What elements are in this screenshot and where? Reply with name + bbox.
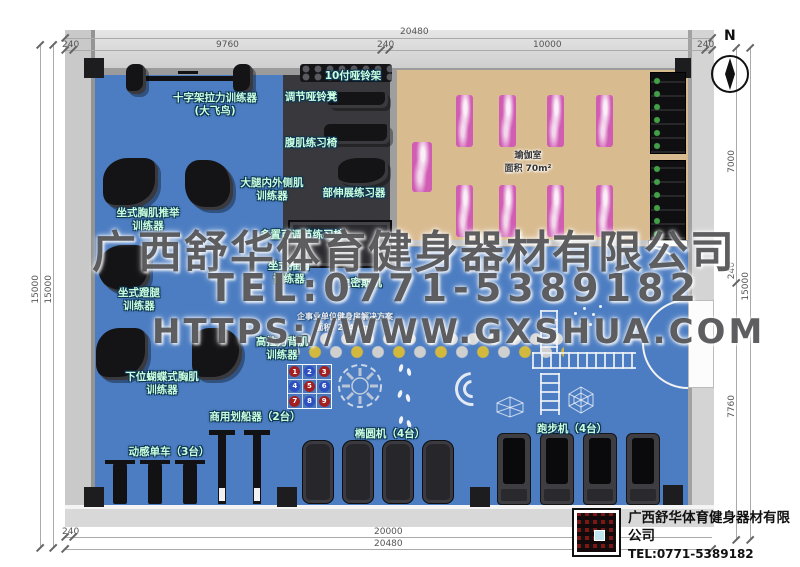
label-treadmills: 跑步机（4台） (524, 423, 620, 436)
yoga-mat-icon (456, 95, 473, 147)
dim-right-seg: 7760 (727, 395, 737, 418)
storage-shelf-icon (650, 72, 686, 154)
treadmill-icon (583, 433, 617, 505)
back-extension-icon (338, 158, 388, 186)
hopscotch-grid-icon: 1 2 3 4 5 6 7 8 9 (287, 364, 332, 409)
spin-bike-bar-icon (105, 460, 135, 464)
hop-cell: 1 (288, 365, 302, 379)
dim-bottom-seg: 20000 (374, 527, 403, 537)
gym-floor-plan: 瑜伽室 面积 70m² 1 2 3 4 5 6 7 8 (0, 0, 800, 567)
crossover-bar-icon (133, 76, 245, 81)
hop-cell: 5 (303, 380, 317, 394)
hop-cell: 9 (317, 394, 331, 408)
hop-cell: 8 (303, 394, 317, 408)
spin-bike-icon (113, 462, 127, 504)
spin-bike-bar-icon (175, 460, 205, 464)
yoga-mat-icon (499, 95, 516, 147)
spin-bike-bar-icon (140, 460, 170, 464)
dim-bottom-overall: 20480 (374, 539, 403, 549)
dim-top-seg: 9760 (216, 40, 239, 50)
dim-line-right-segments (736, 48, 737, 540)
footer-company: 广西舒华体育健身器材有限公司 (628, 509, 800, 545)
elliptical-icon (382, 440, 414, 504)
agility-ladder-icon (532, 352, 636, 369)
north-label: N (724, 28, 736, 44)
spin-bike-icon (148, 462, 162, 504)
footer-url: HTTPS://WWW.GXSHUA.COM (628, 563, 800, 567)
crossover-end-icon (233, 64, 253, 94)
dim-right-overall: 15000 (741, 272, 751, 301)
north-compass-icon (711, 55, 749, 93)
label-ellipticals: 椭圆机（4台） (340, 428, 440, 441)
elliptical-icon (422, 440, 454, 504)
column (470, 487, 490, 507)
rower-seat-icon (219, 488, 225, 501)
elliptical-icon (342, 440, 374, 504)
treadmill-icon (540, 433, 574, 505)
qr-code-icon (572, 508, 621, 557)
dim-left-outer: 15000 (31, 275, 41, 304)
label-leg-press: 坐式蹬腿 训练器 (96, 287, 182, 312)
chest-press-machine-icon (103, 158, 158, 208)
yoga-room-label: 瑜伽室 面积 70m² (478, 150, 578, 175)
column (277, 487, 297, 507)
label-adj-bench: 调节哑铃凳 (278, 91, 344, 104)
crossover-end-icon (126, 64, 146, 94)
label-back-extension: 部伸展练习器 (311, 187, 397, 200)
column (663, 485, 683, 505)
yoga-room-area: 面积 70m² (478, 163, 578, 176)
rower-handle-icon (209, 430, 235, 435)
watermark-tel: TEL:0771-5389182 (208, 266, 702, 310)
label-pec-fly: 下位蝴蝶式胸肌 训练器 (88, 371, 236, 396)
yoga-mat-icon (412, 142, 432, 192)
spin-bike-icon (183, 462, 197, 504)
wall-left (65, 30, 95, 526)
spider-web-icon (494, 396, 526, 418)
footer-tel: TEL:0771-5389182 (628, 545, 800, 563)
elliptical-icon (302, 440, 334, 504)
footer-info: 广西舒华体育健身器材有限公司 TEL:0771-5389182 HTTPS://… (628, 509, 800, 567)
yoga-mat-icon (596, 95, 613, 147)
hop-cell: 3 (317, 365, 331, 379)
spider-web-icon (566, 386, 596, 414)
dim-top-seg: 10000 (533, 40, 562, 50)
yoga-mat-icon (547, 95, 564, 147)
watermark-url: HTTPS://WWW.GXSHUA.COM (152, 312, 765, 352)
label-dumbbell-rack: 10付哑铃架 (310, 70, 396, 83)
agility-wheel-icon (336, 362, 384, 410)
label-crossover: 十字架拉力训练器 (大飞鸟) (150, 92, 280, 117)
agility-ladder-icon (540, 373, 560, 415)
hop-cell: 4 (288, 380, 302, 394)
dim-top-overall: 20480 (400, 27, 429, 37)
label-rowers: 商用划船器（2台） (198, 411, 312, 424)
treadmill-icon (497, 433, 531, 505)
crossover-handle-icon (178, 71, 198, 74)
column (84, 487, 104, 507)
hop-cell: 6 (317, 380, 331, 394)
hop-cell: 7 (288, 394, 302, 408)
label-ab-chair: 腹肌练习椅 (278, 137, 344, 150)
dim-right-seg: 7000 (727, 150, 737, 173)
label-thigh: 大腿内外侧肌 训练器 (224, 177, 320, 202)
column (84, 58, 104, 78)
hop-cell: 2 (303, 365, 317, 379)
rower-handle-icon (244, 430, 270, 435)
label-bikes: 动感单车（3台） (112, 446, 226, 459)
yoga-room-name: 瑜伽室 (478, 150, 578, 163)
treadmill-icon (626, 433, 660, 505)
dim-line-top-overall (65, 38, 712, 39)
rower-seat-icon (254, 488, 260, 501)
dim-left-inner: 15000 (44, 275, 54, 304)
